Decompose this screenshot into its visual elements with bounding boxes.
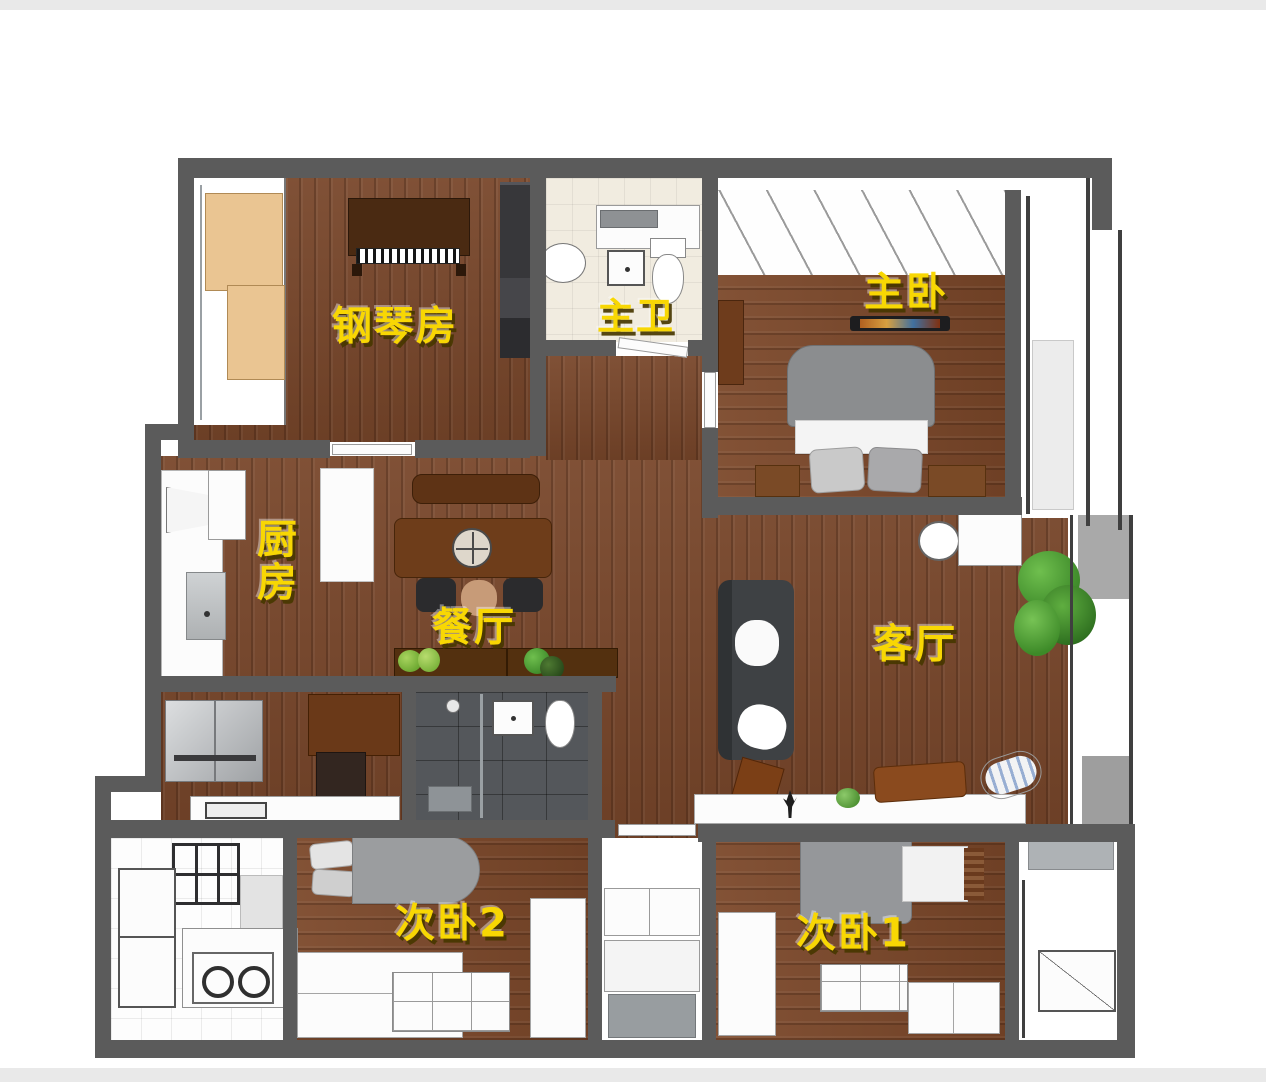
bedroom2-pillow-b — [311, 868, 357, 897]
wall-bath-bottom-right — [688, 340, 702, 356]
master-bed-duvet — [787, 345, 935, 427]
curtain-panel-top — [1078, 515, 1132, 599]
wall-piano-bottom-right — [415, 440, 530, 458]
wall-top — [178, 158, 1110, 178]
balcony-br-frame — [1022, 880, 1025, 1038]
piano-leg-left — [352, 264, 362, 276]
laundry-cabinet — [604, 940, 700, 992]
bedroom1-dresser — [908, 982, 1000, 1034]
balcony-br-window — [1038, 950, 1116, 1012]
shower-drain — [625, 267, 630, 272]
bedroom2-pillow-a — [309, 840, 355, 870]
master-bedroom-door — [704, 372, 716, 428]
window-frame-living-outer — [1129, 515, 1133, 838]
room-label-dining: 餐厅 — [432, 606, 516, 649]
window-frame-2 — [1086, 178, 1090, 526]
living-corner-cabinet — [958, 514, 1022, 566]
window-frame-1 — [1026, 196, 1030, 514]
master-tv — [850, 316, 950, 331]
bedroom1-desk-column — [718, 912, 776, 1036]
bedroom2-bed-duvet — [352, 836, 480, 904]
kitchen-island — [320, 468, 374, 582]
room-label-master-bath: 主卫 — [597, 297, 675, 337]
wall-left-lower — [95, 776, 111, 1058]
bedroom1-headboard — [964, 848, 984, 900]
balcony-br-window-sash — [1040, 952, 1114, 1010]
shower-head — [446, 699, 460, 713]
room-label-kitchen: 厨房 — [255, 519, 301, 605]
wall-bedroom-balcony-divider — [1005, 190, 1021, 515]
piano-leg-right — [456, 264, 466, 276]
wall-bath-bedroom-divider-upper — [702, 158, 718, 372]
room-label-master-bedroom: 主卧 — [864, 271, 948, 314]
window-frame-outer-top — [1118, 230, 1122, 530]
living-round-table — [918, 521, 960, 561]
master-wardrobe — [718, 300, 744, 385]
second-bath-drain-mat — [428, 786, 472, 812]
wall-left-upper — [178, 158, 194, 440]
nightstand-left — [755, 465, 800, 497]
sink-drain — [204, 611, 210, 617]
piano-keyboard — [356, 248, 460, 264]
shower-glass-partition — [480, 694, 483, 818]
wall-bath-bottom-left — [546, 340, 616, 356]
master-pillow-right — [867, 447, 923, 494]
bedroom2-open-shelf — [392, 972, 510, 1032]
lazy-susan — [452, 528, 492, 568]
rack-bar-3 — [175, 873, 237, 876]
fridge-handle-bar — [174, 755, 256, 761]
second-bath-toilet — [545, 700, 575, 748]
bath-basin — [540, 243, 586, 283]
master-pillow-left — [809, 446, 866, 494]
wall-left-middle — [145, 424, 161, 790]
piano-room-wardrobe — [500, 182, 530, 358]
lazy-susan-line-h — [456, 548, 488, 550]
wall-bedrooms-top-left — [95, 820, 615, 838]
room-label-living: 客厅 — [873, 623, 957, 666]
wall-bedrooms-top-right — [698, 824, 1135, 842]
fridge-door-split — [214, 701, 216, 781]
hall-to-bedrooms-door — [618, 824, 696, 836]
nightstand-right — [928, 465, 986, 497]
gas-cooktop — [192, 952, 274, 1004]
sideboard-divider — [506, 649, 508, 677]
utility-window — [118, 868, 176, 1008]
fridge — [165, 700, 263, 782]
laundry-counter-split — [649, 889, 650, 935]
living-plant-c — [1014, 600, 1060, 656]
room-label-bedroom2: 次卧2 — [395, 902, 509, 945]
window-frame-living-inner — [1070, 515, 1073, 838]
bedroom1-dresser-split — [953, 983, 954, 1033]
bottom-strip — [0, 1068, 1266, 1082]
balcony-window-line — [200, 185, 202, 420]
second-bath-sink — [492, 700, 534, 736]
floor-hallway — [546, 356, 702, 460]
utility-tile-patch — [240, 875, 283, 930]
second-bath-sink-drain — [511, 716, 516, 721]
kitchen-tall-cabinet — [208, 470, 246, 540]
wall-second-bath-right — [588, 692, 602, 822]
piano-room-door — [332, 444, 412, 455]
bedroom1-bed-sheet — [902, 846, 968, 902]
tv-console — [694, 794, 1026, 824]
balcony-shelf — [205, 193, 283, 291]
wall-utility-bedroom2-divider — [283, 838, 297, 1040]
wall-bedroom1-balcony-divider — [1005, 838, 1019, 1040]
floorplan-canvas: 钢琴房 主卫 主卧 厨房 餐厅 客厅 次卧2 次卧1 — [0, 0, 1266, 1082]
balcony-tile-column — [1032, 340, 1074, 510]
bedroom1-open-shelf — [820, 964, 908, 1012]
pantry-dark-box — [316, 752, 366, 802]
master-bedroom-glazing — [718, 190, 1005, 275]
room-label-bedroom1: 次卧1 — [796, 912, 910, 955]
balcony-desk — [227, 285, 285, 380]
metal-rack — [172, 843, 240, 905]
sideboard-plant-left-b — [418, 648, 440, 672]
console-small-plant — [836, 788, 860, 808]
wall-bedroom2-laundry-divider — [588, 838, 602, 1040]
shower-tray — [607, 250, 645, 286]
wall-piano-bath-divider — [530, 158, 546, 456]
laundry-counter — [604, 888, 700, 936]
wall-bottom — [95, 1040, 1135, 1058]
dining-bench — [412, 474, 540, 504]
burner-left — [202, 966, 234, 998]
pantry-sink — [205, 802, 267, 819]
burner-right — [238, 966, 270, 998]
bath-mirror — [600, 210, 658, 228]
wall-piano-bottom-left — [178, 440, 330, 458]
utility-window-mullion — [120, 936, 174, 938]
bedroom2-tall-cabinet — [530, 898, 586, 1038]
top-strip — [0, 0, 1266, 10]
wall-master-bedroom-bottom — [702, 497, 1022, 515]
tv-on-console — [873, 761, 967, 803]
wall-dining-bottom — [145, 676, 616, 692]
wall-laundry-bedroom1-divider — [702, 838, 716, 1040]
wall-second-bath-left — [402, 692, 416, 822]
pantry-cabinet — [308, 694, 400, 756]
kitchen-sink — [186, 572, 226, 640]
room-label-piano: 钢琴房 — [332, 305, 458, 348]
wall-right-lower — [1117, 830, 1135, 1058]
laundry-floor-mat — [608, 994, 696, 1038]
wall-right-upper — [1092, 158, 1112, 230]
sofa-pillow-top — [735, 620, 779, 666]
